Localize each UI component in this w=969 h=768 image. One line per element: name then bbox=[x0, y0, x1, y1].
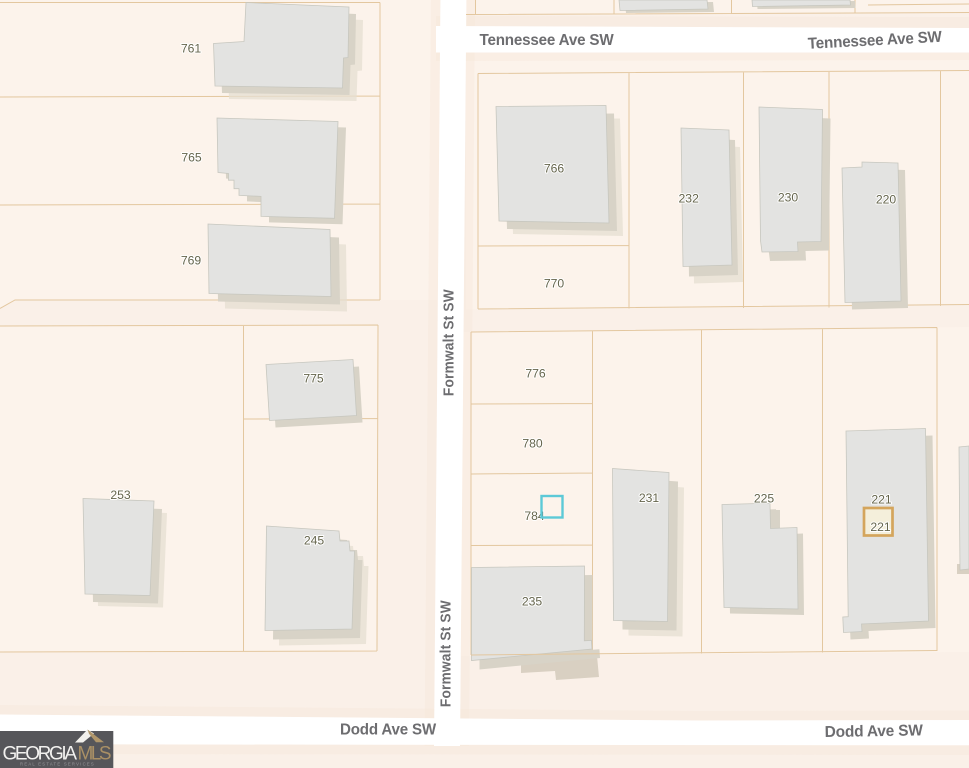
svg-text:776: 776 bbox=[525, 367, 546, 381]
svg-text:231: 231 bbox=[639, 491, 660, 505]
svg-text:765: 765 bbox=[181, 151, 202, 165]
svg-text:220: 220 bbox=[876, 192, 897, 206]
svg-text:232: 232 bbox=[679, 192, 700, 206]
svg-text:235: 235 bbox=[522, 595, 543, 609]
svg-text:Tennessee Ave SW: Tennessee Ave SW bbox=[480, 32, 614, 49]
svg-text:766: 766 bbox=[544, 162, 565, 176]
svg-text:770: 770 bbox=[544, 277, 565, 291]
svg-text:230: 230 bbox=[778, 190, 799, 204]
svg-text:253: 253 bbox=[110, 488, 131, 502]
svg-text:REAL ESTATE SERVICES: REAL ESTATE SERVICES bbox=[20, 761, 95, 766]
svg-text:769: 769 bbox=[181, 254, 202, 268]
svg-text:225: 225 bbox=[754, 492, 775, 506]
svg-text:221: 221 bbox=[870, 520, 891, 534]
svg-text:245: 245 bbox=[304, 534, 325, 548]
svg-text:Formwalt St SW: Formwalt St SW bbox=[438, 600, 455, 708]
svg-text:761: 761 bbox=[181, 42, 202, 56]
svg-text:Formwalt St SW: Formwalt St SW bbox=[441, 289, 458, 397]
svg-text:775: 775 bbox=[303, 372, 324, 386]
svg-text:Dodd Ave SW: Dodd Ave SW bbox=[825, 722, 924, 741]
svg-text:Dodd Ave SW: Dodd Ave SW bbox=[340, 722, 436, 739]
svg-text:221: 221 bbox=[871, 493, 892, 507]
svg-text:780: 780 bbox=[522, 437, 543, 451]
